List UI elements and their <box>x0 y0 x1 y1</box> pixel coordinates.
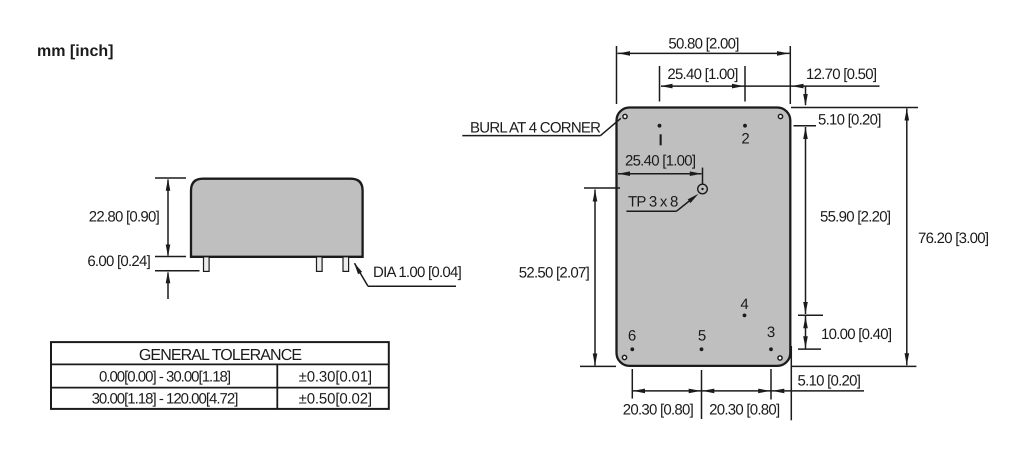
svg-text:30.00[1.18] - 120.00[4.72]: 30.00[1.18] - 120.00[4.72] <box>92 391 239 408</box>
svg-text:TP 3 x 8: TP 3 x 8 <box>628 194 678 211</box>
svg-text:25.40 [1.00]: 25.40 [1.00] <box>667 66 738 83</box>
svg-text:50.80 [2.00]: 50.80 [2.00] <box>668 36 739 53</box>
svg-text:BURL AT 4 CORNER: BURL AT 4 CORNER <box>470 120 601 137</box>
svg-text:5.10 [0.20]: 5.10 [0.20] <box>798 373 861 390</box>
svg-text:5.10 [0.20]: 5.10 [0.20] <box>818 111 881 128</box>
svg-text:5: 5 <box>698 328 706 345</box>
svg-text:52.50 [2.07]: 52.50 [2.07] <box>519 265 590 282</box>
svg-text:25.40 [1.00]: 25.40 [1.00] <box>625 153 696 170</box>
svg-text:55.90 [2.20]: 55.90 [2.20] <box>820 209 891 226</box>
svg-text:20.30 [0.80]: 20.30 [0.80] <box>709 401 780 418</box>
svg-text:22.80 [0.90]: 22.80 [0.90] <box>89 209 160 226</box>
svg-text:GENERAL TOLERANCE: GENERAL TOLERANCE <box>139 347 301 364</box>
svg-text:20.30 [0.80]: 20.30 [0.80] <box>623 401 694 418</box>
svg-text:76.20 [3.00]: 76.20 [3.00] <box>918 230 989 247</box>
svg-text:mm [inch]: mm [inch] <box>37 43 113 60</box>
svg-text:DIA 1.00 [0.04]: DIA 1.00 [0.04] <box>373 264 462 281</box>
svg-text:10.00 [0.40]: 10.00 [0.40] <box>821 326 892 343</box>
svg-text:6: 6 <box>628 328 636 345</box>
svg-text:2: 2 <box>741 131 749 148</box>
svg-text:0.00[0.00] - 30.00[1.18]: 0.00[0.00] - 30.00[1.18] <box>99 369 231 386</box>
svg-text:±0.50[0.02]: ±0.50[0.02] <box>299 391 372 408</box>
svg-text:12.70 [0.50]: 12.70 [0.50] <box>806 66 877 83</box>
svg-text:6.00 [0.24]: 6.00 [0.24] <box>87 253 150 270</box>
svg-text:4: 4 <box>740 296 748 313</box>
svg-text:±0.30[0.01]: ±0.30[0.01] <box>299 369 372 386</box>
svg-text:3: 3 <box>767 324 775 341</box>
